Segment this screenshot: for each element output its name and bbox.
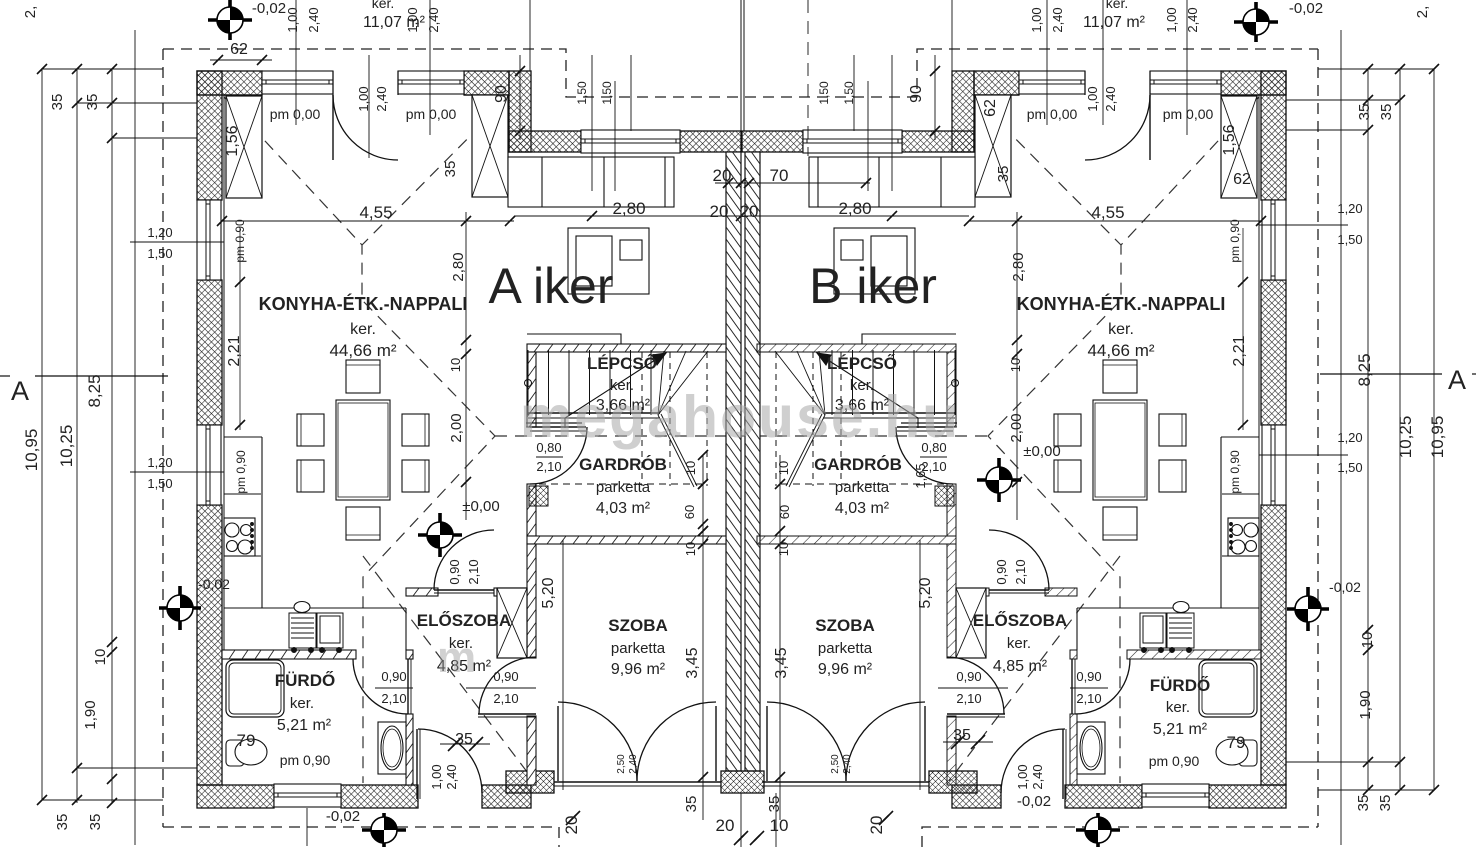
svg-text:ker.: ker. [1007,635,1031,652]
svg-text:2,: 2, [1414,6,1431,19]
svg-text:2,40: 2,40 [1030,764,1045,789]
svg-text:10: 10 [1008,358,1023,372]
svg-text:4,55: 4,55 [1091,203,1124,222]
svg-text:GARDRÓB: GARDRÓB [814,455,902,474]
svg-text:60: 60 [682,505,697,519]
svg-text:KONYHA-ÉTK.-NAPPALI: KONYHA-ÉTK.-NAPPALI [1017,293,1226,314]
svg-text:62: 62 [982,99,999,117]
svg-text:1,50: 1,50 [842,81,856,105]
svg-text:5,21 m²: 5,21 m² [277,717,332,734]
svg-text:2,10: 2,10 [466,559,481,584]
svg-text:1,00: 1,00 [405,7,420,32]
svg-text:1,50: 1,50 [817,81,831,105]
svg-text:pm 0,00: pm 0,00 [270,106,321,122]
svg-text:0,90: 0,90 [956,669,981,684]
svg-text:10: 10 [776,542,791,556]
svg-text:20: 20 [867,816,886,835]
svg-text:20: 20 [740,202,759,221]
svg-text:1,50: 1,50 [147,246,172,261]
svg-text:5,20: 5,20 [917,577,934,608]
svg-text:1,20: 1,20 [147,455,172,470]
svg-text:2,40: 2,40 [1103,86,1118,111]
svg-text:35: 35 [442,161,459,178]
svg-text:10: 10 [1359,632,1376,649]
svg-text:4,55: 4,55 [359,203,392,222]
svg-text:35: 35 [1378,104,1395,121]
svg-text:10: 10 [770,816,789,835]
svg-text:10: 10 [448,358,463,372]
svg-text:parketta: parketta [611,640,666,657]
svg-text:2,21: 2,21 [226,335,243,366]
svg-text:35: 35 [1377,795,1394,812]
svg-text:11,07 m²: 11,07 m² [1083,14,1146,31]
svg-text:LÉPCSŐ: LÉPCSŐ [587,354,657,373]
svg-text:8,25: 8,25 [85,374,104,407]
svg-text:35: 35 [766,796,783,813]
svg-text:90: 90 [493,85,510,103]
svg-text:10: 10 [92,649,109,666]
svg-text:35: 35 [1356,104,1373,121]
svg-text:20: 20 [713,166,732,185]
svg-text:4,85 m²: 4,85 m² [993,658,1048,675]
svg-text:2,40: 2,40 [374,86,389,111]
svg-text:1,50: 1,50 [1337,460,1362,475]
svg-text:SZOBA: SZOBA [608,616,668,635]
svg-text:2,40: 2,40 [1185,7,1200,32]
svg-text:2,: 2, [22,6,39,19]
svg-text:35: 35 [49,94,66,111]
svg-text:3,45: 3,45 [773,647,790,678]
svg-text:1,00: 1,00 [285,7,300,32]
svg-text:A: A [11,376,29,406]
svg-text:1,50: 1,50 [1337,232,1362,247]
svg-text:2,80: 2,80 [612,199,645,218]
svg-text:ELŐSZOBA: ELŐSZOBA [417,611,511,630]
svg-text:60: 60 [777,505,792,519]
svg-text:35: 35 [995,166,1012,183]
svg-text:B iker: B iker [809,258,937,314]
svg-text:SZOBA: SZOBA [815,616,875,635]
svg-text:0,90: 0,90 [493,669,518,684]
svg-text:20: 20 [710,202,729,221]
svg-text:2,10: 2,10 [956,691,981,706]
svg-text:35: 35 [87,814,104,831]
svg-text:0,90: 0,90 [447,559,462,584]
svg-text:5,21 m²: 5,21 m² [1153,721,1208,738]
svg-text:1,20: 1,20 [147,225,172,240]
svg-text:0,90: 0,90 [994,559,1009,584]
svg-text:ker.: ker. [350,321,376,338]
svg-text:2,40: 2,40 [1050,7,1065,32]
svg-text:10,95: 10,95 [1428,416,1447,459]
svg-text:2,10: 2,10 [493,691,518,706]
svg-text:2,10: 2,10 [1076,691,1101,706]
svg-text:2,40: 2,40 [842,754,853,774]
svg-text:3,45: 3,45 [684,647,701,678]
svg-text:ker.: ker. [1106,0,1129,11]
svg-text:-0,02: -0,02 [1017,793,1051,810]
svg-text:±0,00: ±0,00 [462,498,499,515]
svg-text:ELŐSZOBA: ELŐSZOBA [973,611,1067,630]
svg-text:pm 0,90: pm 0,90 [1228,219,1242,263]
svg-text:2,80: 2,80 [838,199,871,218]
svg-text:10,95: 10,95 [22,429,41,472]
svg-text:A iker: A iker [488,258,613,314]
svg-text:1,00: 1,00 [1085,86,1100,111]
svg-text:35: 35 [84,94,101,111]
svg-text:pm 0,90: pm 0,90 [1228,450,1242,494]
svg-text:5,20: 5,20 [540,577,557,608]
svg-text:90: 90 [908,85,925,103]
svg-text:±0,00: ±0,00 [1023,443,1060,460]
svg-text:44,66 m²: 44,66 m² [329,341,396,360]
svg-text:1,00: 1,00 [1164,7,1179,32]
svg-text:1,65: 1,65 [913,463,928,488]
svg-text:35: 35 [1355,795,1372,812]
svg-text:8,25: 8,25 [1355,353,1374,386]
svg-text:megahouse.hu: megahouse.hu [520,384,960,450]
svg-text:-0,02: -0,02 [326,808,360,825]
svg-text:20: 20 [716,816,735,835]
svg-text:9,96 m²: 9,96 m² [611,661,666,678]
svg-text:62: 62 [1233,171,1251,188]
svg-text:62: 62 [230,41,248,58]
svg-text:parketta: parketta [818,640,873,657]
svg-text:2,80: 2,80 [450,252,467,281]
svg-text:KONYHA-ÉTK.-NAPPALI: KONYHA-ÉTK.-NAPPALI [259,293,468,314]
svg-text:ker.: ker. [1108,321,1134,338]
svg-text:GARDRÓB: GARDRÓB [579,455,667,474]
svg-text:1,00: 1,00 [356,86,371,111]
svg-text:2,40: 2,40 [306,7,321,32]
svg-text:ker.: ker. [372,0,395,11]
svg-text:4,03 m²: 4,03 m² [835,500,890,517]
svg-text:ker.: ker. [1166,699,1190,716]
svg-text:1,56: 1,56 [224,125,241,156]
svg-text:44,66 m²: 44,66 m² [1087,341,1154,360]
svg-text:10,25: 10,25 [1396,416,1415,459]
svg-text:ker.: ker. [290,695,314,712]
svg-text:2,50: 2,50 [830,754,841,774]
svg-text:m: m [437,633,476,682]
svg-text:35: 35 [683,796,700,813]
svg-text:2,10: 2,10 [536,459,561,474]
svg-text:1,20: 1,20 [1337,201,1362,216]
svg-text:2,50: 2,50 [616,754,627,774]
svg-text:1,90: 1,90 [1357,690,1374,719]
svg-text:-0,02: -0,02 [252,0,286,17]
svg-text:1,50: 1,50 [147,476,172,491]
svg-text:-0,02: -0,02 [1329,579,1361,595]
svg-text:10: 10 [683,542,698,556]
svg-text:10: 10 [776,461,791,475]
svg-text:2,10: 2,10 [381,691,406,706]
svg-text:2,40: 2,40 [444,764,459,789]
svg-text:1,90: 1,90 [82,700,99,729]
svg-text:2,10: 2,10 [1013,559,1028,584]
svg-text:0,90: 0,90 [381,669,406,684]
svg-text:pm 0,90: pm 0,90 [280,752,331,768]
svg-text:70: 70 [770,166,789,185]
svg-text:-0,02: -0,02 [1289,0,1323,17]
svg-text:79: 79 [1227,733,1246,752]
svg-text:FÜRDŐ: FÜRDŐ [1150,676,1210,695]
svg-text:1,00: 1,00 [1029,7,1044,32]
svg-text:A: A [1448,365,1466,395]
svg-text:35: 35 [54,814,71,831]
svg-text:parketta: parketta [596,479,651,496]
svg-text:2,80: 2,80 [1010,252,1027,281]
svg-text:pm 0,00: pm 0,00 [1027,106,1078,122]
svg-text:10,25: 10,25 [57,425,76,468]
svg-text:79: 79 [237,731,256,750]
svg-text:1,00: 1,00 [1015,764,1030,789]
svg-text:0,90: 0,90 [1076,669,1101,684]
svg-text:10: 10 [683,461,698,475]
svg-text:2,21: 2,21 [1231,335,1248,366]
svg-text:2,00: 2,00 [448,413,465,442]
svg-text:4,03 m²: 4,03 m² [596,500,651,517]
svg-text:2,00: 2,00 [1008,413,1025,442]
svg-text:pm 0,90: pm 0,90 [233,219,247,263]
svg-text:pm 0,00: pm 0,00 [1163,106,1214,122]
svg-text:LÉPCSŐ: LÉPCSŐ [827,354,897,373]
svg-text:35: 35 [953,727,971,744]
svg-text:pm 0,90: pm 0,90 [1149,753,1200,769]
svg-text:FÜRDŐ: FÜRDŐ [275,671,335,690]
svg-text:2,40: 2,40 [628,754,639,774]
svg-text:1,50: 1,50 [600,81,614,105]
svg-text:35: 35 [455,731,473,748]
svg-text:pm 0,00: pm 0,00 [406,106,457,122]
svg-text:2,40: 2,40 [426,7,441,32]
svg-text:-0,02: -0,02 [198,576,230,592]
svg-text:20: 20 [562,816,581,835]
svg-text:1,00: 1,00 [429,764,444,789]
svg-text:1,20: 1,20 [1337,430,1362,445]
svg-text:1,50: 1,50 [575,81,589,105]
svg-text:9,96 m²: 9,96 m² [818,661,873,678]
svg-text:1,56: 1,56 [1221,124,1238,155]
svg-text:pm 0,90: pm 0,90 [234,450,248,494]
svg-text:parketta: parketta [835,479,890,496]
